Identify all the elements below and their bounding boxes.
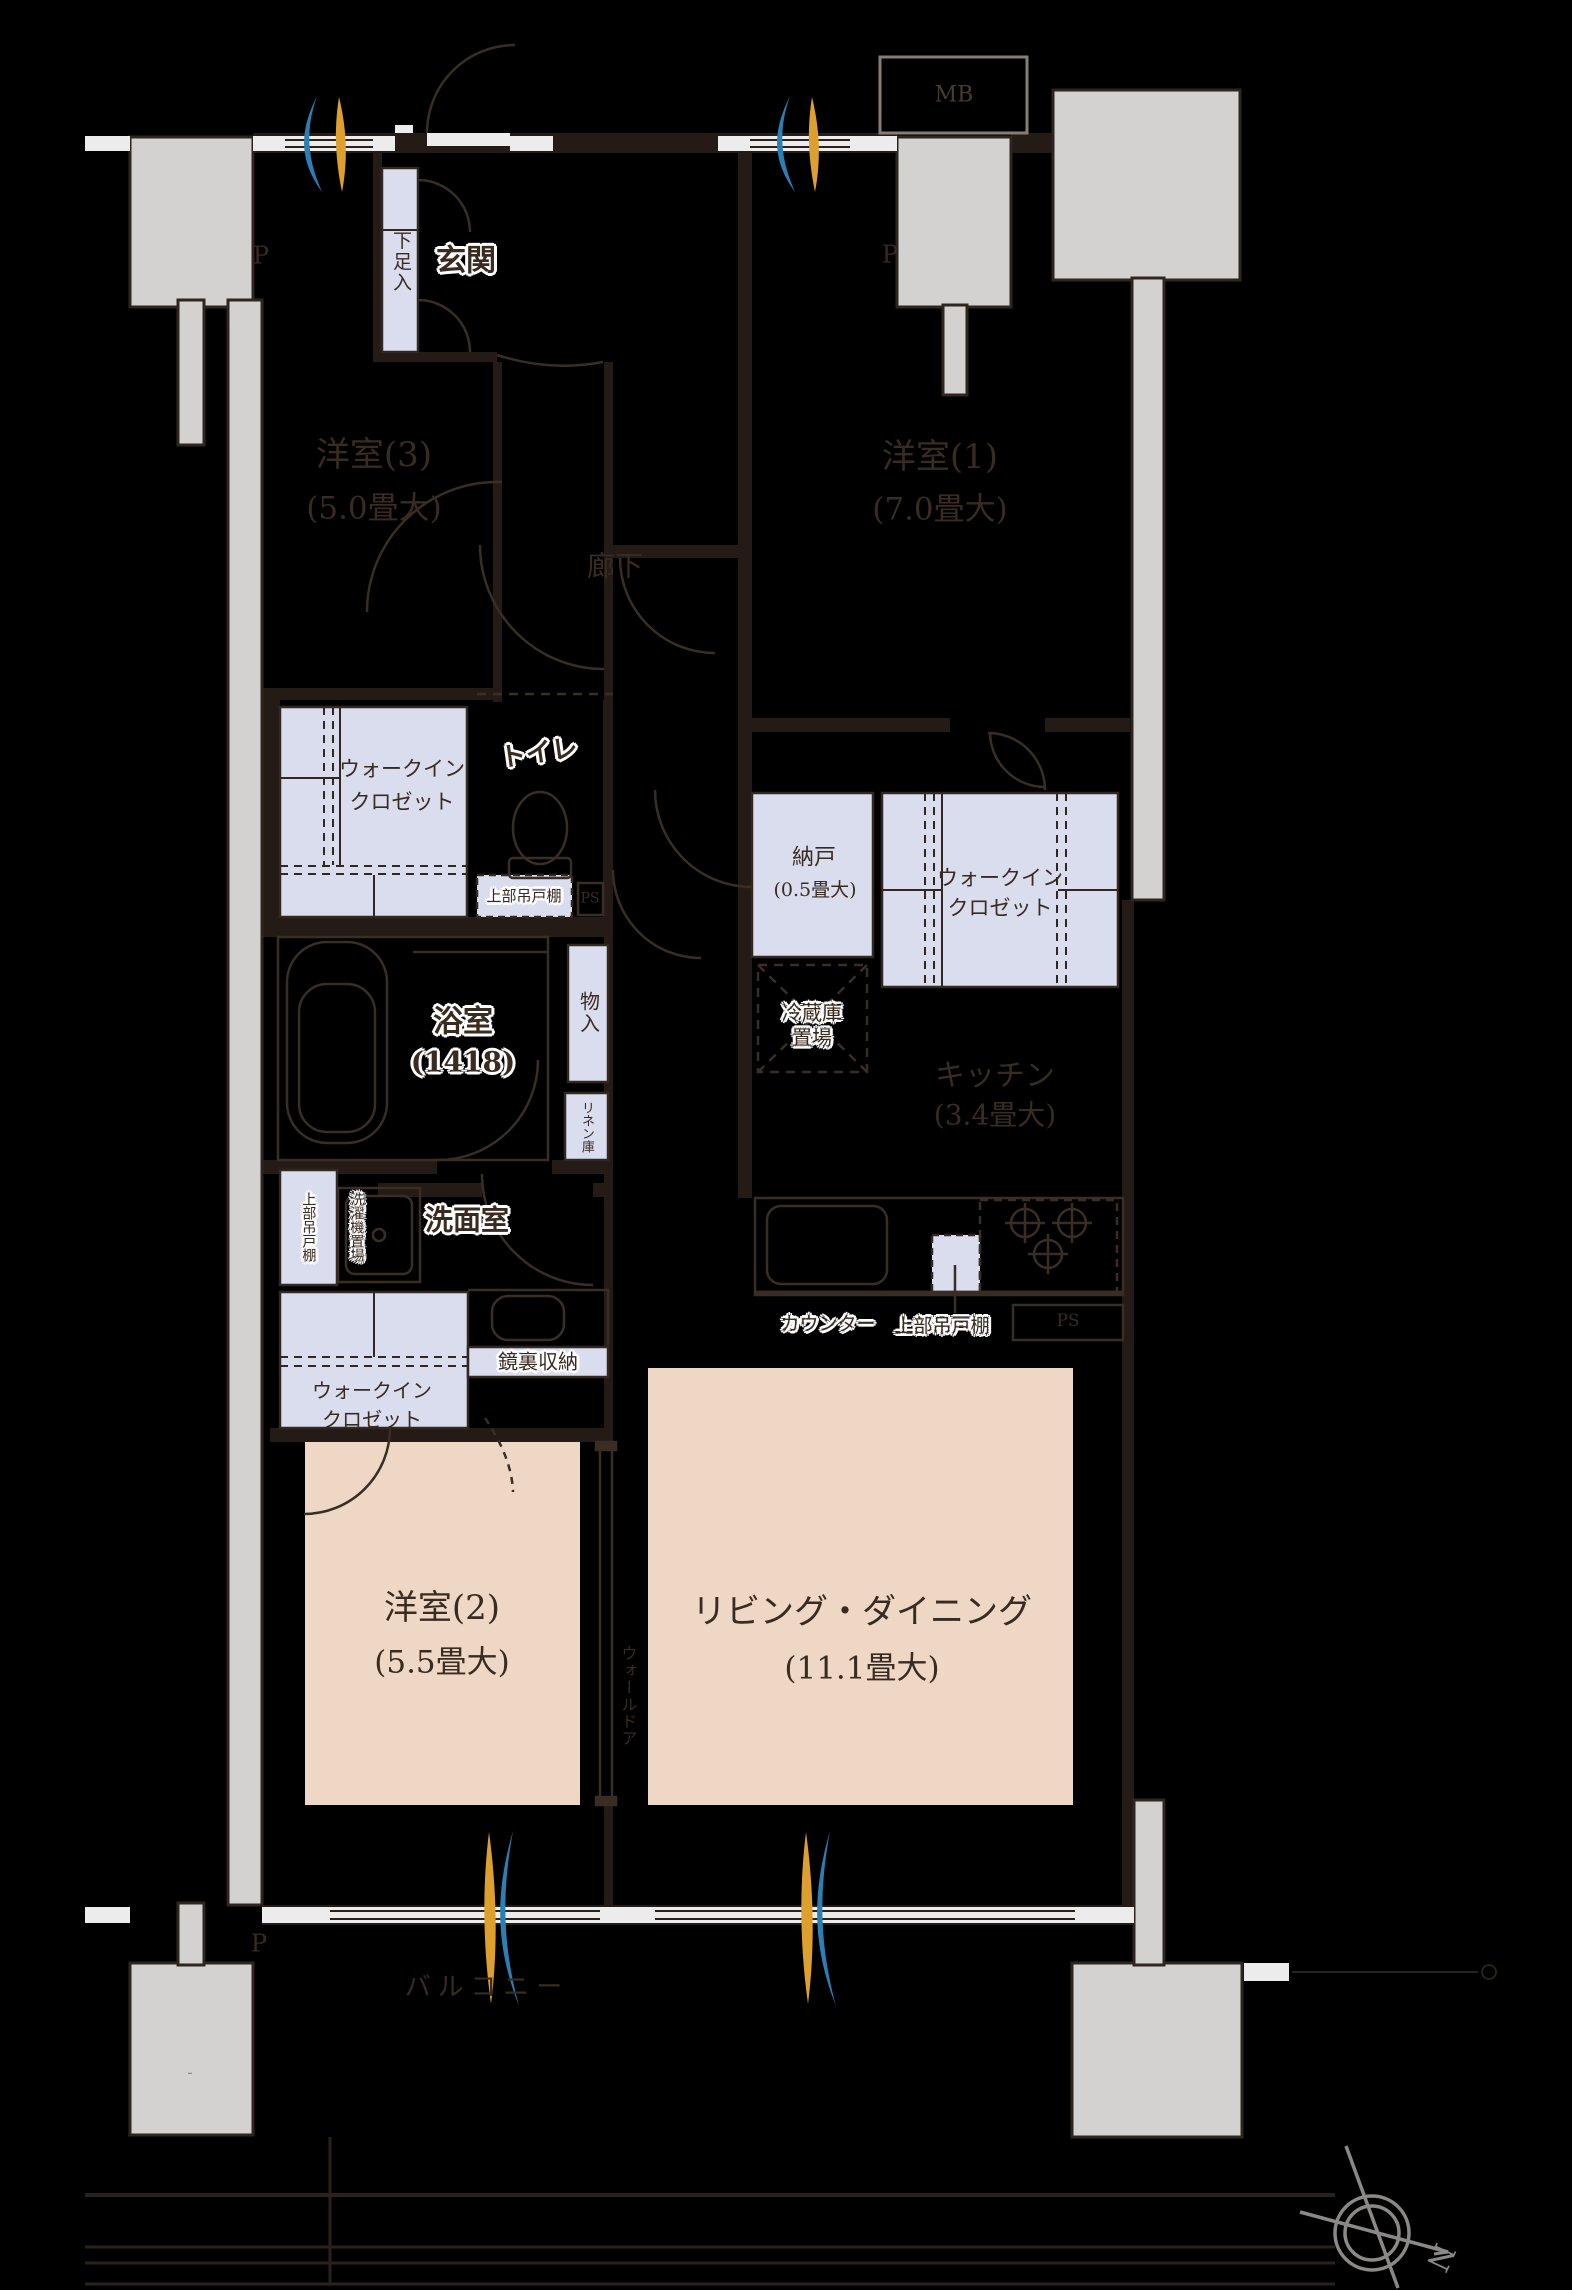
wic2-label-line2: クロゼット [948,897,1053,919]
right-exterior-wall [1132,278,1164,900]
wic3-label-line2: クロゼット [322,1410,422,1431]
wic2-label-line1: ウォークイン [937,867,1063,889]
bedroom1-name: 洋室(1) [882,440,998,476]
living-dining-floor [648,1368,1073,1805]
pillar-dash-mark: - [187,2065,192,2082]
floorplan: MB P P P - 玄関 下足入 洋室(3) (5.0畳大) 洋室(1) (7… [0,0,1572,2290]
stove-burners [1005,1203,1092,1274]
nando-name: 納戸 [792,846,836,869]
linen-label: リネン庫 [579,1101,593,1153]
entry-step-line [497,355,603,366]
pillar-top-right [1053,90,1240,280]
kitchen-door-arc [655,790,752,887]
nando-size: (0.5畳大) [773,881,856,901]
pillar-mark-bottom-left: P [251,1931,267,1956]
pipe-space-toilet-label: PS [580,892,599,907]
entry-door-panel [427,133,510,146]
compass-icon [1300,2146,1448,2288]
storage-nando [752,793,873,957]
bath-name: 浴室 [433,1006,493,1038]
ld-door-arc [613,870,701,958]
bathtub [287,942,387,1143]
refrigerator-label-line2: 置場 [792,1028,832,1049]
pillar-bottom-left [130,1963,253,2135]
pillar-mark-top-right: P [882,242,898,267]
floorplan-drawing [0,0,1572,2290]
washer-space-label: 洗濯機置場 [349,1192,364,1262]
wall-door [596,1442,616,1805]
monoire-label: 物入 [578,991,599,1035]
wic2-door-arc [988,733,1045,790]
pillar-mark-top-left: P [253,243,269,268]
bedroom1-size: (7.0畳大) [872,494,1008,527]
kitchen-upper-cabinet-label: 上部吊戸棚 [894,1317,989,1337]
bedroom2-name: 洋室(2) [384,1591,500,1627]
balcony-railing [85,2137,1335,2284]
kitchen-sink [767,1206,887,1284]
pillar-bottom-right [1072,1963,1242,2137]
corridor-label: 廊下 [587,551,643,580]
pillar-top-left [130,137,253,307]
wash-basin [492,1296,564,1340]
balcony-label: バルコニー [405,1974,569,2001]
bath-size: (1418) [411,1047,515,1076]
laundry-upper-cabinet-label: 上部吊戸棚 [301,1192,316,1262]
counter-label: カウンター [780,1315,875,1335]
mirror-cabinet-label: 鏡裏収納 [498,1352,578,1373]
wic1-label-line1: ウォークイン [339,758,465,780]
pipe-space-kitchen-label: PS [1056,1313,1079,1331]
entry-door-arc [427,45,515,133]
living-dining-size: (11.1畳大) [784,1653,939,1686]
bedroom3-size: (5.0畳大) [306,493,442,526]
wic1-label-line2: クロゼット [350,791,455,813]
balcony-end-mark [1482,1965,1496,1979]
kitchen-size: (3.4畳大) [934,1100,1056,1129]
kitchen-name: キッチン [935,1060,1055,1092]
entrance-label: 玄関 [436,245,496,277]
washroom-label: 洗面室 [425,1205,509,1234]
left-exterior-wall [228,300,262,1905]
living-dining-name: リビング・ダイニング [692,1595,1032,1631]
wic3-label-line1: ウォークイン [312,1381,432,1402]
bedroom2-size: (5.5畳大) [374,1647,510,1680]
vanity-counter [468,1290,608,1345]
toilet-fixture [513,792,567,864]
refrigerator-label-line1: 冷蔵庫 [782,1003,842,1024]
wall-door-label: ウォールドア [619,1645,636,1747]
toilet-upper-cabinet-label: 上部吊戸棚 [486,889,561,905]
shoe-cabinet-label: 下足入 [390,231,410,294]
pillar-top-mid [897,137,1011,307]
pillars [130,90,1242,2137]
bedroom3-name: 洋室(3) [316,438,432,474]
meterbox-label: MB [935,83,974,106]
